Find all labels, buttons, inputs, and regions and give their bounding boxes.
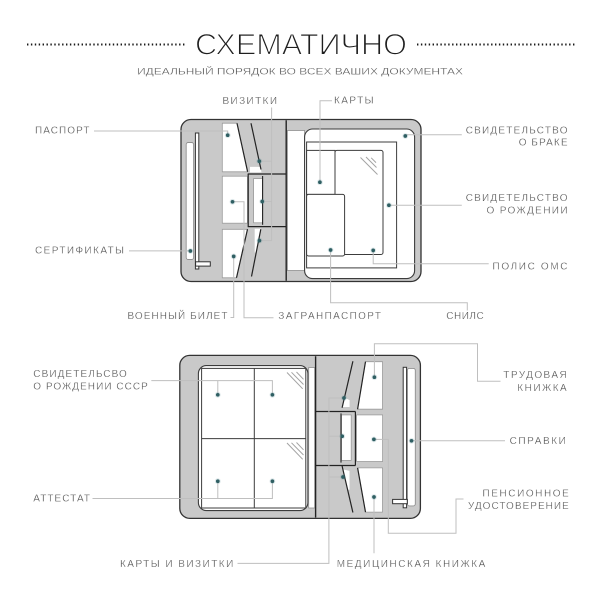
svg-text:О РОЖДЕНИИ СССР: О РОЖДЕНИИ СССР xyxy=(33,382,148,393)
svg-text:АТТЕСТАТ: АТТЕСТАТ xyxy=(33,494,90,505)
svg-text:ПОЛИС ОМС: ПОЛИС ОМС xyxy=(493,261,568,272)
svg-text:ВОЕННЫЙ БИЛЕТ: ВОЕННЫЙ БИЛЕТ xyxy=(128,309,228,322)
svg-text:МЕДИЦИНСКАЯ КНИЖКА: МЕДИЦИНСКАЯ КНИЖКА xyxy=(337,559,486,570)
svg-text:СХЕМАТИЧНО: СХЕМАТИЧНО xyxy=(195,29,407,62)
svg-text:ПЕНСИОННОЕ: ПЕНСИОННОЕ xyxy=(483,488,570,499)
svg-text:О БРАКЕ: О БРАКЕ xyxy=(519,138,568,149)
svg-text:КАРТЫ И ВИЗИТКИ: КАРТЫ И ВИЗИТКИ xyxy=(120,559,233,570)
svg-text:КНИЖКА: КНИЖКА xyxy=(517,383,567,394)
svg-text:ПАСПОРТ: ПАСПОРТ xyxy=(35,126,90,137)
svg-text:СЕРТИФИКАТЫ: СЕРТИФИКАТЫ xyxy=(35,246,124,257)
svg-text:ЗАГРАНПАСПОРТ: ЗАГРАНПАСПОРТ xyxy=(278,311,381,322)
svg-text:СВИДЕТЕЛЬСВО: СВИДЕТЕЛЬСВО xyxy=(33,369,127,380)
svg-text:СНИЛС: СНИЛС xyxy=(446,311,483,322)
svg-text:ИДЕАЛЬНЫЙ ПОРЯДОК ВО ВСЕХ ВАШИ: ИДЕАЛЬНЫЙ ПОРЯДОК ВО ВСЕХ ВАШИХ ДОКУМЕНТ… xyxy=(137,65,464,77)
svg-text:ТРУДОВАЯ: ТРУДОВАЯ xyxy=(503,370,566,381)
svg-text:УДОСТОВЕРЕНИЕ: УДОСТОВЕРЕНИЕ xyxy=(468,501,569,512)
